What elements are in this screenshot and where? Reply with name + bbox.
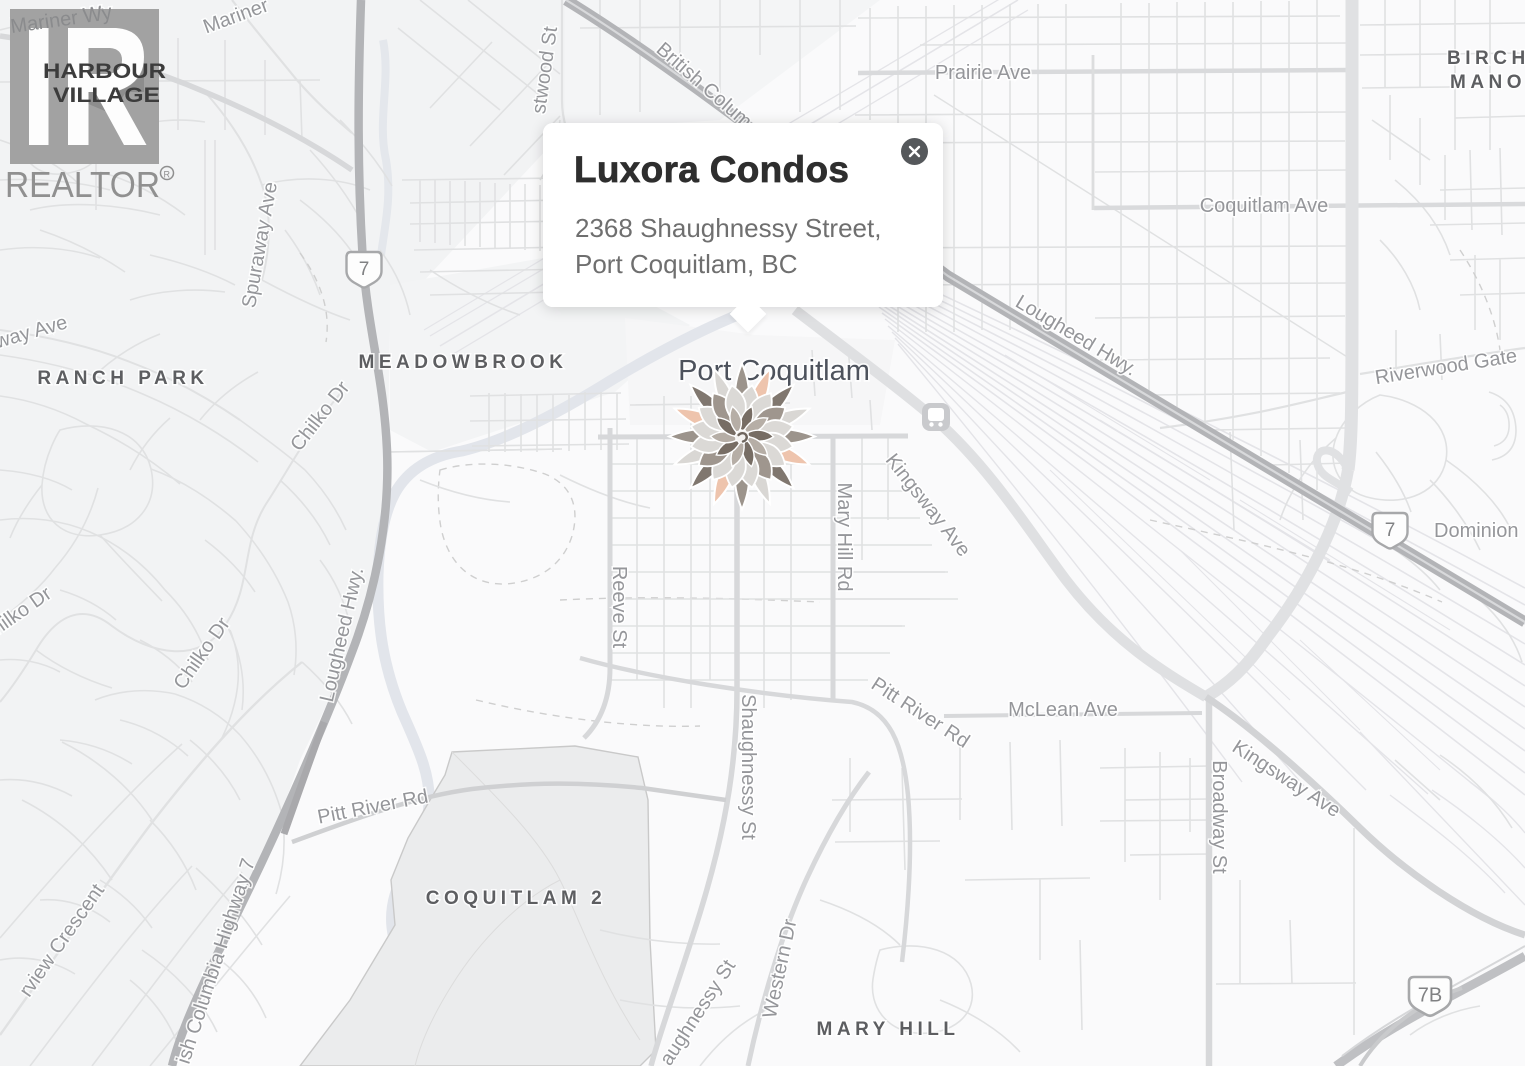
svg-text:MANO: MANO bbox=[1450, 72, 1525, 93]
svg-text:Shaughnessy St: Shaughnessy St bbox=[737, 694, 759, 840]
svg-text:RANCH PARK: RANCH PARK bbox=[37, 368, 208, 389]
svg-text:Dominion: Dominion bbox=[1434, 520, 1518, 542]
svg-text:McLean Ave: McLean Ave bbox=[1008, 699, 1118, 721]
svg-text:7B: 7B bbox=[1418, 985, 1442, 1007]
svg-text:COQUITLAM 2: COQUITLAM 2 bbox=[426, 888, 606, 909]
svg-text:BIRCHL: BIRCHL bbox=[1447, 48, 1525, 69]
svg-text:Reeve St: Reeve St bbox=[608, 566, 630, 649]
svg-text:Mary Hill Rd: Mary Hill Rd bbox=[833, 483, 855, 592]
svg-text:Port Coquitlam: Port Coquitlam bbox=[678, 355, 870, 387]
svg-text:R: R bbox=[164, 170, 171, 180]
svg-text:HARBOUR: HARBOUR bbox=[43, 59, 167, 83]
svg-text:Broadway St: Broadway St bbox=[1208, 760, 1230, 874]
svg-text:MEADOWBROOK: MEADOWBROOK bbox=[359, 352, 568, 373]
svg-text:7: 7 bbox=[1385, 520, 1396, 541]
svg-text:Prairie Ave: Prairie Ave bbox=[935, 62, 1031, 84]
svg-text:VILLAGE: VILLAGE bbox=[53, 83, 160, 107]
svg-text:MARY HILL: MARY HILL bbox=[817, 1019, 960, 1040]
svg-text:REALTOR: REALTOR bbox=[5, 164, 160, 205]
svg-text:Coquitlam Ave: Coquitlam Ave bbox=[1200, 195, 1329, 217]
svg-text:7: 7 bbox=[359, 259, 370, 280]
